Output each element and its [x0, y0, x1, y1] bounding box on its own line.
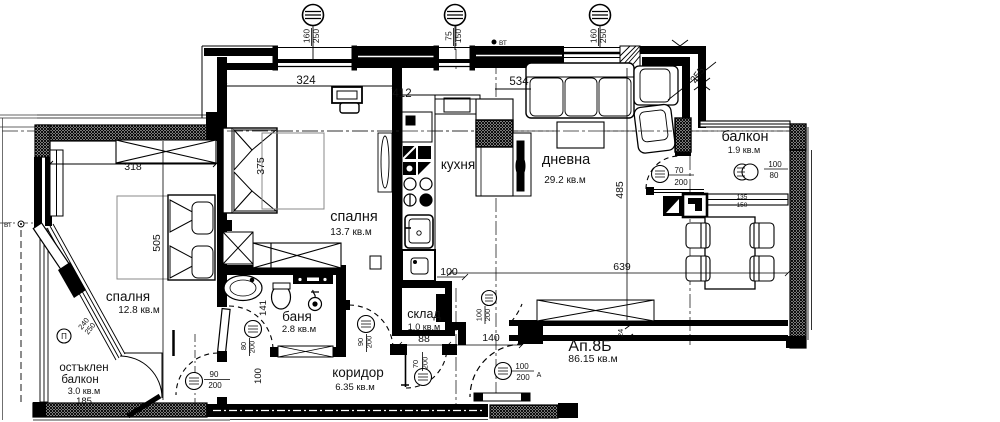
- svg-text:29.2 кв.м: 29.2 кв.м: [544, 175, 586, 186]
- svg-text:200: 200: [674, 178, 688, 187]
- svg-text:1.0 кв.м: 1.0 кв.м: [408, 322, 440, 332]
- svg-text:дневна: дневна: [542, 152, 591, 168]
- svg-text:200: 200: [483, 309, 492, 322]
- svg-text:160: 160: [588, 29, 598, 43]
- svg-text:412: 412: [392, 88, 411, 100]
- svg-text:200: 200: [208, 381, 222, 390]
- svg-text:спалня: спалня: [330, 209, 378, 225]
- svg-text:639: 639: [613, 261, 631, 273]
- svg-text:балкон: балкон: [61, 374, 98, 386]
- svg-text:балкон: балкон: [721, 129, 768, 145]
- svg-text:75: 75: [443, 31, 453, 41]
- svg-text:485: 485: [614, 181, 626, 199]
- svg-text:200: 200: [248, 341, 257, 354]
- svg-text:2.8 кв.м: 2.8 кв.м: [282, 324, 316, 335]
- svg-text:П: П: [61, 332, 67, 341]
- svg-text:баня: баня: [282, 309, 312, 324]
- svg-text:505: 505: [151, 234, 163, 252]
- svg-text:324: 324: [296, 75, 316, 87]
- svg-text:375: 375: [255, 157, 267, 175]
- svg-text:коридор: коридор: [332, 365, 384, 380]
- svg-text:90: 90: [210, 370, 219, 379]
- svg-text:100: 100: [253, 368, 264, 384]
- svg-text:185: 185: [76, 396, 92, 407]
- svg-text:3.0 кв.м: 3.0 кв.м: [68, 386, 100, 396]
- svg-text:склад: склад: [407, 307, 441, 321]
- svg-text:100: 100: [440, 266, 458, 278]
- svg-text:100: 100: [768, 160, 782, 169]
- svg-text:100: 100: [515, 362, 529, 371]
- svg-text:А: А: [537, 372, 542, 379]
- svg-text:88: 88: [418, 333, 430, 345]
- svg-text:200: 200: [516, 373, 530, 382]
- svg-text:6.35 кв.м: 6.35 кв.м: [335, 382, 375, 393]
- svg-text:250: 250: [598, 29, 608, 43]
- svg-text:200: 200: [421, 357, 430, 370]
- svg-text:200: 200: [365, 336, 374, 349]
- svg-text:остъклен: остъклен: [59, 362, 108, 374]
- svg-text:ВТ: ВТ: [4, 222, 12, 229]
- svg-text:318: 318: [124, 161, 142, 173]
- svg-text:кухня: кухня: [441, 157, 475, 172]
- svg-text:спалня: спалня: [106, 289, 150, 304]
- svg-text:13.7 кв.м: 13.7 кв.м: [330, 227, 372, 238]
- svg-text:1.9 кв.м: 1.9 кв.м: [728, 145, 760, 155]
- svg-text:141: 141: [258, 300, 269, 316]
- svg-text:24: 24: [616, 329, 625, 337]
- svg-text:ВТ: ВТ: [499, 40, 507, 47]
- svg-text:70: 70: [411, 360, 420, 368]
- svg-text:70: 70: [675, 166, 684, 175]
- svg-text:534: 534: [509, 76, 529, 88]
- svg-text:250: 250: [311, 29, 321, 43]
- svg-text:135: 135: [737, 194, 748, 201]
- svg-text:12.8 кв.м: 12.8 кв.м: [118, 305, 160, 316]
- svg-text:160: 160: [301, 29, 311, 43]
- svg-text:150: 150: [737, 202, 748, 209]
- svg-text:86.15 кв.м: 86.15 кв.м: [568, 353, 618, 365]
- svg-text:80: 80: [770, 171, 779, 180]
- svg-text:150: 150: [453, 29, 463, 43]
- svg-text:140: 140: [482, 332, 500, 344]
